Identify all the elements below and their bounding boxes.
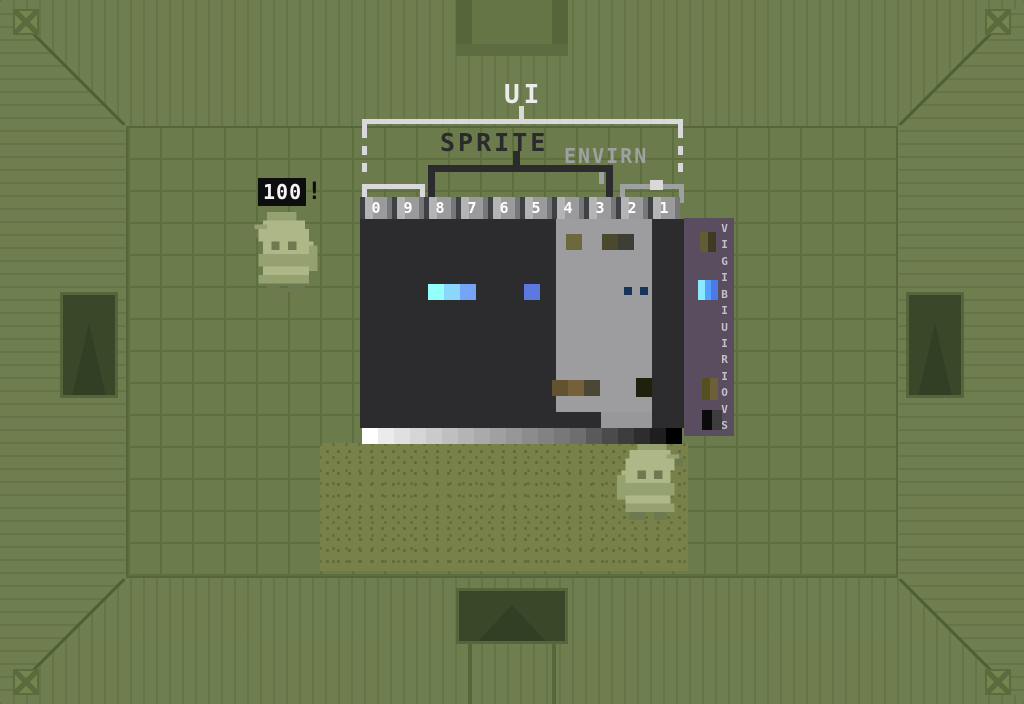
color-swatch[interactable] [460, 284, 476, 300]
vertical-label-char: I [717, 302, 732, 318]
door-top-lintel [456, 44, 568, 56]
corner-x-block [985, 669, 1011, 695]
swatch-strip [700, 232, 708, 252]
ramp-step[interactable] [362, 428, 378, 444]
color-swatch[interactable] [428, 284, 444, 300]
ramp-step[interactable] [442, 428, 458, 444]
door-bottom-jamb [552, 644, 556, 704]
sprite-bracket-bar [428, 165, 613, 172]
vertical-label-char: V [717, 220, 732, 236]
vertical-label-char: V [717, 401, 732, 417]
side-swatch-olive-top[interactable] [700, 232, 716, 252]
palette-index-tile[interactable]: 1 [648, 197, 680, 219]
enemy-sprite [250, 212, 322, 292]
door-bottom-jamb [468, 644, 472, 704]
palette-index-tile[interactable]: 3 [584, 197, 616, 219]
color-swatch[interactable] [444, 284, 460, 300]
ui-bracket-end [362, 124, 367, 138]
palette-index-tile[interactable]: 7 [456, 197, 488, 219]
swatch-strip [698, 280, 705, 300]
ui-bracket-bar [362, 119, 683, 124]
ui-bracket-dash [362, 163, 367, 172]
environ-staple-notch [650, 180, 663, 190]
enemy-sprite [608, 442, 688, 520]
corner-x-block [985, 9, 1011, 35]
dungeon-room: 100 ! UI SPRITE ENVIRN 0987654321 [0, 0, 1024, 704]
ui-staple-left [362, 184, 425, 189]
sprite-bracket-tick [513, 151, 520, 165]
ramp-step[interactable] [554, 428, 570, 444]
door-bottom [456, 588, 568, 644]
vertical-label-char: B [717, 286, 732, 302]
ramp-step[interactable] [634, 428, 650, 444]
door-top [472, 0, 552, 44]
side-panel-vertical-label: VIGIBIUIRIOVS [717, 220, 732, 434]
color-swatch[interactable] [568, 380, 584, 396]
corner-x-block [13, 669, 39, 695]
vertical-label-char: S [717, 418, 732, 434]
ramp-step[interactable] [522, 428, 538, 444]
vertical-label-char: I [717, 269, 732, 285]
palette-index-tile[interactable]: 9 [392, 197, 424, 219]
ramp-step[interactable] [410, 428, 426, 444]
door-left [60, 292, 118, 398]
ramp-step[interactable] [458, 428, 474, 444]
palette-index-tile[interactable]: 2 [616, 197, 648, 219]
color-swatch[interactable] [524, 284, 540, 300]
ramp-step[interactable] [650, 428, 666, 444]
swatch-strip [705, 280, 712, 300]
ramp-step[interactable] [602, 428, 618, 444]
palette-index-tile[interactable]: 8 [424, 197, 456, 219]
ui-bracket-tick [519, 106, 524, 119]
ui-bracket-end [678, 124, 683, 138]
color-swatch[interactable] [552, 380, 568, 396]
panel-right-dark [652, 219, 684, 428]
score-popup: 100 ! [258, 178, 322, 206]
ui-bracket-dash [678, 163, 683, 172]
ramp-step[interactable] [586, 428, 602, 444]
door-right [906, 292, 964, 398]
ramp-step[interactable] [506, 428, 522, 444]
swatch-strip [708, 232, 716, 252]
ramp-step[interactable] [474, 428, 490, 444]
palette-index-tile[interactable]: 0 [360, 197, 392, 219]
side-swatch-blue[interactable] [698, 280, 718, 300]
swatch-strip [702, 378, 710, 400]
score-value: 100 [258, 178, 306, 206]
vertical-label-char: I [717, 335, 732, 351]
corner-x-block [13, 9, 39, 35]
vertical-label-char: O [717, 385, 732, 401]
ramp-step[interactable] [490, 428, 506, 444]
color-swatch-dot[interactable] [640, 287, 648, 295]
ramp-step[interactable] [538, 428, 554, 444]
vertical-label-char: R [717, 352, 732, 368]
score-exclamation: ! [307, 178, 321, 206]
vertical-label-char: I [717, 368, 732, 384]
grayscale-ramp [362, 428, 682, 444]
ramp-step[interactable] [570, 428, 586, 444]
color-swatch[interactable] [566, 234, 582, 250]
ramp-step[interactable] [618, 428, 634, 444]
vertical-label-char: G [717, 253, 732, 269]
palette-index-tile[interactable]: 6 [488, 197, 520, 219]
ramp-step[interactable] [426, 428, 442, 444]
vertical-label-char: I [717, 236, 732, 252]
color-swatch-dot[interactable] [624, 287, 632, 295]
color-swatch[interactable] [636, 378, 652, 397]
palette-index-tile[interactable]: 5 [520, 197, 552, 219]
palette-panel [360, 219, 684, 444]
ui-bracket-dash [678, 146, 683, 155]
palette-index-row: 0987654321 [360, 197, 680, 219]
panel-lower-gray [601, 412, 652, 428]
color-swatch[interactable] [618, 234, 634, 250]
sprite-group-label: SPRITE [440, 128, 548, 157]
environ-swatch-trio [552, 380, 600, 396]
side-panel: VIGIBIUIRIOVS [684, 218, 734, 436]
ui-bracket-dash [362, 146, 367, 155]
color-swatch[interactable] [584, 380, 600, 396]
sprite-palette-section [360, 219, 556, 428]
palette-index-tile[interactable]: 4 [552, 197, 584, 219]
ramp-step[interactable] [666, 428, 682, 444]
sprite-swatch-trio [428, 284, 476, 300]
ramp-step[interactable] [378, 428, 394, 444]
ramp-step[interactable] [394, 428, 410, 444]
vertical-label-char: U [717, 319, 732, 335]
side-swatch-olive-bottom[interactable] [702, 378, 718, 400]
color-swatch[interactable] [602, 234, 618, 250]
swatch-strip [702, 410, 712, 430]
